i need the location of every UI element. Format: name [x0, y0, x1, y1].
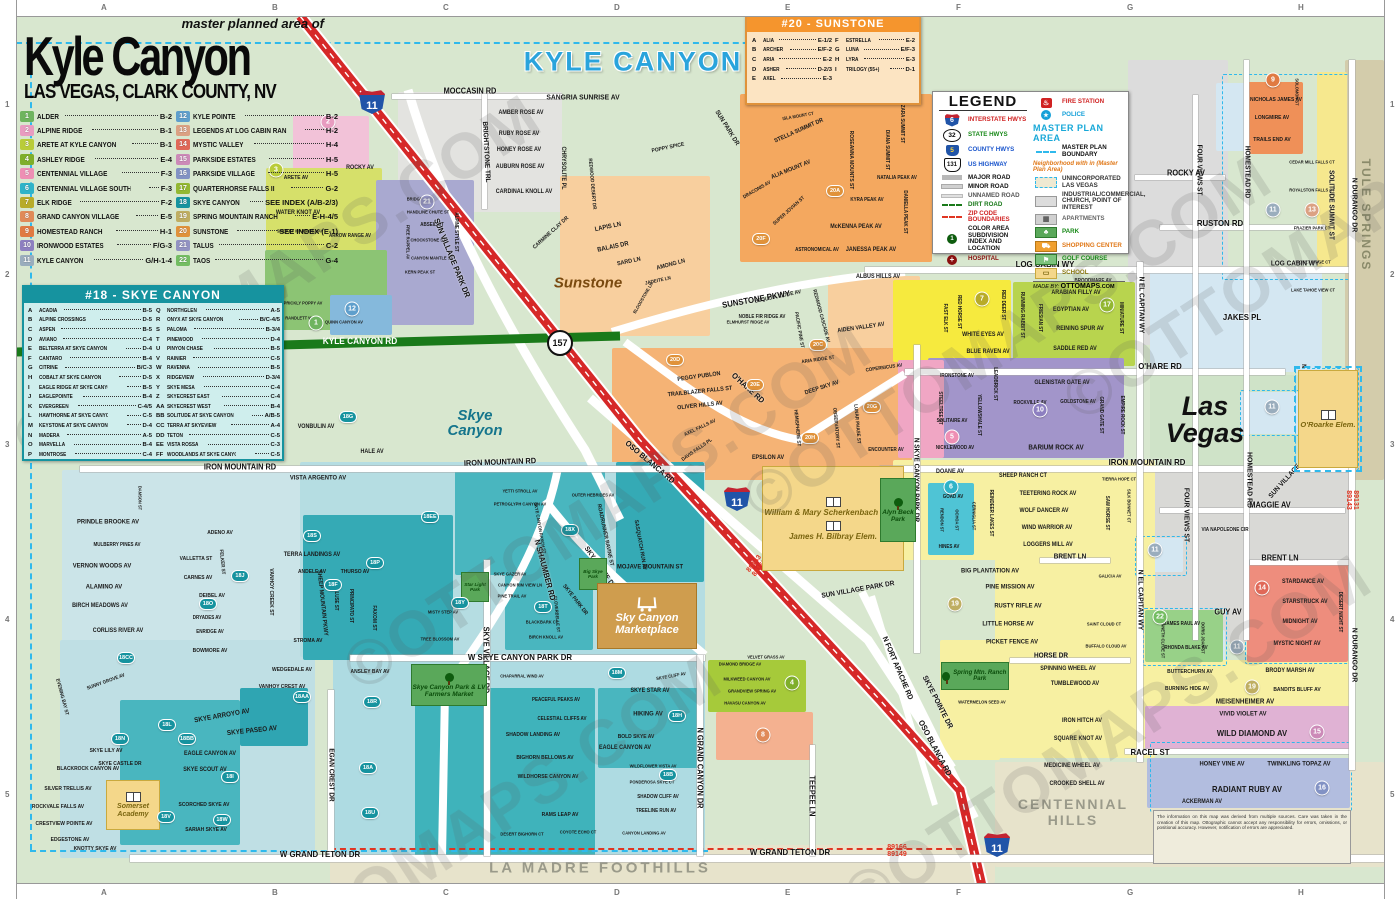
index-row[interactable]: 3ARETE AT KYLE CANYONB-1	[20, 138, 172, 152]
subdivision-marker-18H[interactable]: 18H	[669, 711, 685, 721]
street-label: DAMSON ST	[138, 486, 143, 510]
sub-index-name: RAVENNA	[167, 365, 190, 371]
sub-index-name: PINYON CHASE	[167, 346, 203, 352]
subdivision-marker-18M[interactable]: 18M	[609, 668, 625, 678]
legend-item: MINOR ROAD	[939, 184, 1027, 191]
street-label: BOWMORE AV	[193, 648, 228, 654]
sub-index-row[interactable]: RONYX AT SKYE CANYONB/C-4/5	[156, 316, 280, 326]
road-label: N DURANGO DR	[1351, 628, 1360, 682]
index-name: HOMESTEAD RANCH	[37, 227, 103, 236]
unnamed-road-icon	[939, 194, 965, 198]
sub-index-letter: H	[28, 375, 39, 381]
sub-index-ref: C-4	[271, 385, 281, 391]
sub-index-ref: E-1/2	[818, 38, 832, 44]
index-row[interactable]: 21TALUSC-2	[176, 239, 338, 253]
sub-index-letter: T	[156, 337, 167, 343]
street-label: IRONSTONE AV	[940, 373, 974, 379]
index-row[interactable]: 18SKYE CANYONSEE INDEX (A/B-2/3)	[176, 195, 338, 209]
sub-index-row[interactable]: NMADERAA-5	[28, 431, 152, 441]
sub-index-row[interactable]: GCITRINEB/C-3	[28, 364, 152, 374]
road-label: JAKES PL	[1223, 312, 1261, 322]
index-ref: SEE INDEX (E-1)	[279, 227, 338, 236]
sub-index-name: BELTERRA AT SKYE CANYON	[39, 346, 107, 352]
subdivision-marker-18N[interactable]: 18N	[112, 734, 128, 744]
dirt-road-icon	[939, 204, 965, 206]
street-label: DIAMOND BRIDGE AV	[719, 662, 762, 667]
subdivision-marker-18P[interactable]: 18P	[367, 558, 383, 568]
subdivision-marker-20A[interactable]: 20A	[827, 186, 843, 196]
street-label: TWINKLING TOPAZ AV	[1267, 761, 1330, 768]
index-ref: G-2	[325, 184, 338, 193]
subdivision-marker-20H[interactable]: 20H	[802, 433, 818, 443]
sub-index-row[interactable]: AACADIAB-5	[28, 306, 152, 316]
park-name-alyn-beck: Alyn Beck Park	[881, 509, 915, 523]
index-number-chip: 5	[20, 168, 34, 179]
sub-index-ref: C-4/5	[138, 404, 152, 410]
sub-index-name: NORTHGLEN	[167, 308, 197, 314]
street-label: BURNING HIDE AV	[1165, 686, 1209, 692]
road-label: W GRAND TETON DR	[280, 849, 360, 859]
index-row[interactable]: 16PARKSIDE VILLAGEH-5	[176, 167, 338, 181]
legend-item: 1COLOR AREA SUBDIVISION INDEX AND LOCATI…	[939, 226, 1027, 252]
subdivision-marker-15[interactable]: 15	[1311, 726, 1324, 739]
index-ref: H-1	[160, 227, 172, 236]
subdivision-marker-16[interactable]: 16	[1316, 782, 1329, 795]
subdivision-marker-5[interactable]: 5	[946, 431, 959, 444]
grid-row-label: 3	[5, 440, 9, 449]
zip-code-label: 8916689149	[887, 844, 906, 858]
subdivision-marker-18A[interactable]: 18A	[360, 763, 376, 773]
sub-index-name: MONTROSE	[39, 452, 66, 458]
index-row[interactable]: 1ALDERB-2	[20, 109, 172, 123]
subdivision-marker-18BB[interactable]: 18BB	[179, 734, 195, 744]
road-label: RUSTON RD	[1197, 218, 1243, 228]
street-label: KENNETH CLYDE ST	[1161, 618, 1166, 658]
sub-index-row[interactable]: FCANTAROB-4	[28, 354, 152, 364]
street-label: CRESTVIEW POINTE AV	[36, 821, 93, 827]
road-band[interactable]	[1010, 658, 1130, 663]
sub-index-row[interactable]: SPALOMAB-3/4	[156, 325, 280, 335]
index-name: ALDER	[37, 112, 59, 121]
park-star-light[interactable]: Star Light Park	[461, 572, 489, 602]
index-name: ASHLEY RIDGE	[37, 155, 85, 164]
road-band[interactable]	[1137, 262, 1143, 762]
sunstone-index-title: #20 - SUNSTONE	[747, 17, 919, 32]
street-label: STARSTRUCK AV	[1282, 599, 1327, 605]
sub-index-name: ONYX AT SKYE CANYON	[167, 317, 223, 323]
park-spring-mtn-ranch[interactable]: Spring Mtn. Ranch Park	[941, 662, 1009, 690]
road-label: KYLE CANYON RD	[323, 336, 398, 346]
index-ref: G/H-1-4	[145, 256, 172, 265]
legend-item: MASTER PLAN BOUNDARY	[1033, 145, 1125, 158]
sub-index-name: TETON	[167, 433, 183, 439]
subdivision-marker-13[interactable]: 13	[1306, 204, 1319, 217]
subdivision-marker-20D[interactable]: 20D	[667, 355, 683, 365]
street-label: BLACKROCK CANYON AV	[57, 766, 119, 772]
sw-park-icon: ♣	[1033, 227, 1059, 238]
subdivision-marker-18V[interactable]: 18V	[158, 812, 174, 822]
index-number-chip: 17	[176, 183, 190, 194]
subdivision-marker-18F[interactable]: 18F	[325, 580, 341, 590]
sub-index-row[interactable]: HLYRAE-3	[835, 55, 915, 65]
school-somerset[interactable]: Somerset Academy	[106, 780, 160, 830]
index-row[interactable]: 9HOMESTEAD RANCHH-1	[20, 224, 172, 238]
credit-name[interactable]: OTTOMAPS	[1061, 283, 1101, 290]
street-label: ROCKVALE FALLS AV	[32, 804, 84, 810]
sub-index-row[interactable]: CCTERRA AT SKYEVIEWA-4	[156, 421, 280, 431]
sub-index-name: ASHER	[763, 67, 780, 73]
street-label: SKYE STAR AV	[631, 688, 670, 694]
sub-index-name: MADERA	[39, 433, 60, 439]
zip-code: 89143	[1345, 490, 1352, 509]
street-label: HANDLINE CHUTE ST	[407, 210, 449, 215]
index-row[interactable]: 19SPRING MOUNTAIN RANCHE-H-4/5	[176, 210, 338, 224]
la-madre-foothills-label: LA MADRE FOOTHILLS	[489, 860, 711, 877]
sub-index-letter: V	[156, 356, 167, 362]
subdivision-marker-20G[interactable]: 20G	[864, 402, 880, 412]
sub-index-row[interactable]: AALIAE-1/2	[752, 36, 832, 46]
subdivision-marker-22[interactable]: 22	[1154, 611, 1167, 624]
street-label: ENRIDGE AV	[196, 629, 224, 635]
sub-index-letter: M	[28, 423, 39, 429]
sub-index-name: WOODLANDS AT SKYE CANYON	[167, 452, 236, 458]
index-ref: H-4	[326, 140, 338, 149]
sub-index-row[interactable]: BARCHERE/F-2	[752, 46, 832, 56]
sub-index-name: ARCHER	[763, 47, 783, 53]
street-label: GRAND GATE ST	[1098, 397, 1104, 434]
sub-index-letter: O	[28, 442, 39, 448]
sub-index-letter: G	[835, 47, 846, 53]
sub-index-row[interactable]: FESTRELLAE-2	[835, 36, 915, 46]
street-label: GOAD AV	[943, 494, 964, 500]
index-ref: B-2	[160, 112, 172, 121]
subdivision-marker-11[interactable]: 11	[1231, 641, 1244, 654]
sub-index-row[interactable]: HCOBALT AT SKYE CANYOND-5	[28, 373, 152, 383]
subdivision-marker-12[interactable]: 12	[346, 303, 359, 316]
sub-index-row[interactable]: JEAGLEPOINTEB-4	[28, 392, 152, 402]
sub-index-row[interactable]: ZSKYECREST EASTC-4	[156, 392, 280, 402]
road-label: W GRAND TETON DR	[750, 847, 830, 857]
index-ref: F/G-3	[153, 241, 172, 250]
index-row[interactable]: 5CENTENNIAL VILLAGEF-3	[20, 167, 172, 181]
subdivision-marker-20E[interactable]: 20E	[747, 380, 763, 390]
sub-index-name: RAINIER	[167, 356, 186, 362]
sub-index-ref: C-5	[143, 413, 153, 419]
subdivision-marker-19[interactable]: 19	[949, 598, 962, 611]
subdivision-marker-18AA[interactable]: 18AA	[294, 692, 310, 702]
tree-icon	[894, 498, 903, 507]
grid-col-label: A	[101, 888, 107, 897]
index-row[interactable]: 22TAOSG-4	[176, 253, 338, 267]
sub-index-row[interactable]: IEAGLE RIDGE AT SKYE CANYONB-5	[28, 383, 152, 393]
subdivision-marker-20C[interactable]: 20C	[810, 340, 826, 350]
sub-index-name: RIDGEVIEW	[167, 375, 194, 381]
sub-index-name: PALOMA	[167, 327, 187, 333]
index-row[interactable]: 7ELK RIDGEF-2	[20, 195, 172, 209]
road-label: HOMESTEAD RD	[1244, 146, 1251, 198]
sub-index-row[interactable]: DDTETONC-5	[156, 431, 280, 441]
index-row[interactable]: 12KYLE POINTEB-2	[176, 109, 338, 123]
street-label: GLENISTAR GATE AV	[1034, 380, 1089, 386]
index-name: GRAND CANYON VILLAGE	[37, 212, 119, 221]
sub-index-row[interactable]: ITRILOGY (55+)D-1	[835, 65, 915, 75]
street-label: SARIAH SKYE AV	[185, 827, 227, 833]
index-ref: H-5	[326, 155, 338, 164]
subdivision-marker-18I[interactable]: 18I	[222, 772, 238, 782]
street-label: ELMHURST RIDGE AV	[727, 320, 770, 325]
street-label: SKYE SCOUT AV	[183, 767, 227, 773]
street-label: DESERT BIGHORN CT	[500, 832, 543, 837]
park-skye-canyon[interactable]: Skye Canyon Park & LV Farmers Market	[411, 664, 487, 706]
road-label: BRENT LN	[1261, 554, 1298, 563]
street-label: LONGMIRE AV	[1255, 115, 1289, 121]
legend-item: MASTER PLAN AREA	[1033, 123, 1125, 143]
road-label: RACEL ST	[1131, 747, 1170, 757]
subdivision-marker-18W[interactable]: 18W	[214, 815, 230, 825]
sw-unincorporated-icon	[1033, 177, 1059, 188]
subdivision-marker-1[interactable]: 1	[310, 317, 323, 330]
sub-index-row[interactable]: CARIAE-2	[752, 55, 832, 65]
street-label: MYSTIC NIGHT AV	[1273, 641, 1320, 647]
legend-item: ▭SCHOOL	[1033, 268, 1125, 279]
index-row[interactable]: 2ALPINE RIDGEB-1	[20, 123, 172, 137]
sub-index-name: AXEL	[763, 76, 776, 82]
index-row[interactable]: 4ASHLEY RIDGEE-4	[20, 152, 172, 166]
sub-index-name: SOLITUDE AT SKYE CANYON	[167, 413, 234, 419]
sub-index-letter: D	[752, 67, 763, 73]
sub-index-name: EAGLE RIDGE AT SKYE CANYON	[39, 385, 108, 391]
street-label: THURSO AV	[341, 569, 370, 575]
street-label: EAGLE CANYON AV	[599, 745, 651, 751]
street-label: RUNNING RABBIT ST	[1019, 292, 1025, 338]
sub-index-row[interactable]: VRAINIERC-5	[156, 354, 280, 364]
sub-index-row[interactable]: EEVISTA ROSSAC-3	[156, 440, 280, 450]
sub-index-letter: C	[752, 57, 763, 63]
sub-index-letter: C	[28, 327, 39, 333]
index-name: LEGENDS AT LOG CABIN RANCH	[193, 126, 287, 135]
sub-index-name: SKYECREST WEST	[167, 404, 211, 410]
index-row[interactable]: 8GRAND CANYON VILLAGEE-5	[20, 210, 172, 224]
sub-index-row[interactable]: FFWOODLANDS AT SKYE CANYONC-5	[156, 450, 280, 460]
road-band[interactable]	[484, 560, 490, 856]
index-row[interactable]: 15PARKSIDE ESTATESH-5	[176, 152, 338, 166]
index-row[interactable]: 14MYSTIC VALLEYH-4	[176, 138, 338, 152]
sub-index-row[interactable]: PMONTROSEC-4	[28, 450, 152, 460]
legend-label: COUNTY HWYS	[968, 147, 1014, 154]
sub-index-row[interactable]: AASKYECREST WESTB-4	[156, 402, 280, 412]
school-name-bilbray: James H. Bilbray Elem.	[789, 532, 877, 541]
sub-index-row[interactable]: DASHERD-2/3	[752, 65, 832, 75]
subdivision-marker-14[interactable]: 14	[1256, 582, 1269, 595]
street-label: VERNON WOODS AV	[73, 563, 132, 570]
sub-index-row[interactable]: LHAWTHORNE AT SKYE CANYONC-5	[28, 412, 152, 422]
kyle-canyon-master-plan-label: KYLE CANYON	[524, 47, 743, 78]
subdivision-marker-18Y[interactable]: 18Y	[452, 598, 468, 608]
sw-apartments-icon: ▦	[1033, 214, 1059, 225]
subdivision-marker-19[interactable]: 19	[1246, 681, 1259, 694]
street-label: BANDITS BLUFF AV	[1273, 687, 1320, 693]
grid-col-label: F	[956, 3, 961, 12]
street-label: GOLDSTONE AV	[1060, 399, 1095, 405]
subdivision-marker-18CC[interactable]: 18CC	[118, 653, 134, 663]
street-label: CERNIGLIA ST	[972, 502, 977, 530]
subdivision-marker-18G[interactable]: 18G	[340, 412, 356, 422]
street-label: KYRA PEAK AV	[850, 197, 883, 203]
sub-index-name: ESTRELLA	[846, 38, 871, 44]
grid-row-label: 2	[1390, 270, 1394, 279]
legend-item: ★POLICE	[1033, 110, 1125, 120]
school-oroarke[interactable]: O'Roarke Elem.	[1298, 370, 1358, 468]
tule-springs-label: TULE SPRINGS	[1359, 159, 1373, 272]
credit-prefix: MADE BY:	[1033, 284, 1059, 290]
subdivision-marker-6[interactable]: 6	[945, 481, 958, 494]
street-label: CEDAR MILL FALLS CT	[1289, 160, 1334, 165]
index-number-chip: 12	[176, 111, 190, 122]
street-label: EGYPTIAN AV	[1053, 307, 1089, 313]
index-ref: F-3	[161, 169, 172, 178]
legend-item: 5COUNTY HWYS	[939, 145, 1027, 156]
street-label: BUFFALO CLOUD AV	[1086, 644, 1127, 649]
map-canvas[interactable]: KYLE CANYON Las Vegas Sunstone Skye Cany…	[0, 0, 1400, 899]
credit-suffix: .COM	[1100, 284, 1114, 290]
sub-index-ref: C-3	[271, 442, 281, 448]
index-row[interactable]: 11KYLE CANYONG/H-1-4	[20, 253, 172, 267]
sub-index-row[interactable]: EBELTERRA AT SKYE CANYOND-4	[28, 344, 152, 354]
index-ref: F-2	[161, 198, 172, 207]
shopping-sky-canyon-marketplace[interactable]: Sky Canyon Marketplace	[597, 583, 697, 649]
road-label: SOLITUDE SUMMIT ST	[1328, 170, 1335, 240]
sub-index-name: VISTA ROSSA	[167, 442, 198, 448]
street-label: HAVASU CANYON AV	[724, 701, 765, 706]
subdivision-marker-9[interactable]: 9	[1267, 74, 1280, 87]
street-label: SADDLE RED AV	[1053, 346, 1097, 352]
subdivision-marker-4[interactable]: 4	[786, 677, 799, 690]
subdivision-marker-21[interactable]: 21	[421, 196, 434, 209]
sub-index-row[interactable]: WRAVENNAB-5	[156, 364, 280, 374]
road-band[interactable]	[80, 466, 705, 472]
subdivision-marker-10[interactable]: 10	[1034, 404, 1047, 417]
sub-index-ref: C-5	[271, 433, 281, 439]
street-label: SHEEP RANCH CT	[999, 473, 1047, 479]
street-label: DORIS JOAN ST	[1201, 622, 1206, 654]
index-row[interactable]: 10IRONWOOD ESTATESF/G-3	[20, 239, 172, 253]
sub-index-letter: EE	[156, 442, 167, 448]
sub-index-row[interactable]: CASPENB-5	[28, 325, 152, 335]
index-row[interactable]: 17QUARTERHORSE FALLS IIG-2	[176, 181, 338, 195]
title-sub: LAS VEGAS, CLARK COUNTY, NV	[24, 81, 305, 104]
legend-item: UNINCORPORATED LAS VEGAS	[1033, 176, 1125, 189]
index-number-chip: 8	[20, 211, 34, 222]
street-label: QUINN CANYON AV	[325, 320, 363, 325]
street-label: DEIBEL AV	[199, 593, 225, 599]
street-label: CHAPARRAL WIND AV	[500, 674, 544, 679]
sub-index-letter: D	[28, 337, 39, 343]
sub-index-ref: B/C-3	[137, 365, 152, 371]
subdivision-marker-18J[interactable]: 18J	[232, 571, 248, 581]
subdivision-marker-8[interactable]: 8	[757, 729, 770, 742]
legend-item: ⚑GOLF COURSE	[1033, 254, 1125, 265]
subdivision-marker-11[interactable]: 11	[1266, 401, 1279, 414]
street-label: SAINT CLOUD CT	[1087, 622, 1121, 627]
subdivision-marker-18O[interactable]: 18O	[200, 599, 216, 609]
sw-school-icon: ▭	[1033, 268, 1059, 279]
subdivision-marker-18EE[interactable]: 18EE	[422, 512, 438, 522]
subdivision-marker-7[interactable]: 7	[976, 293, 989, 306]
road-label: FOUR VIEWS ST	[1183, 488, 1192, 542]
road-label: N GRAND CANYON DR	[696, 728, 705, 809]
street-label: MEDICINE WHEEL AV	[1044, 763, 1100, 769]
subdivision-marker-11[interactable]: 11	[1267, 204, 1280, 217]
street-label: PRINCIPATO ST	[348, 589, 354, 623]
sub-index-ref: B-5	[143, 385, 153, 391]
subdivision-marker-18L[interactable]: 18L	[159, 720, 175, 730]
subdivision-marker-18S[interactable]: 18S	[304, 531, 320, 541]
grid-row-label: 2	[5, 270, 9, 279]
sub-index-ref: E-3	[823, 76, 832, 82]
street-label: IRON HITCH AV	[1062, 718, 1102, 724]
street-label: WEDGEDALE AV	[272, 667, 312, 673]
sub-index-letter: E	[752, 76, 763, 82]
subdivision-marker-11[interactable]: 11	[1149, 544, 1162, 557]
road-label: ROCKY AV	[1167, 169, 1205, 178]
sub-index-row[interactable]: DAVIANOC-4	[28, 335, 152, 345]
sub-index-row[interactable]: MKEYSTONE AT SKYE CANYOND-4	[28, 421, 152, 431]
sub-index-row[interactable]: EAXELE-3	[752, 74, 832, 84]
sub-index-row[interactable]: TPINEWOODD-4	[156, 335, 280, 345]
legend-item: 32STATE HWYS	[939, 129, 1027, 142]
road-sun-village-park-dr[interactable]	[408, 90, 620, 520]
street-label: BRODY MARSH AV	[1265, 668, 1314, 674]
street-label: LAKE TAHOE VIEW CT	[1291, 288, 1335, 293]
road-label: N EL CAPITAN WY	[1137, 570, 1146, 631]
index-row[interactable]: 6CENTENNIAL VILLAGE SOUTHF-3	[20, 181, 172, 195]
sub-index-row[interactable]: OMARVELLAB-4	[28, 440, 152, 450]
park-alyn-beck[interactable]: Alyn Beck Park	[880, 478, 916, 542]
subdivision-marker-18U[interactable]: 18U	[362, 808, 378, 818]
sub-index-row[interactable]: YSKYE MESAC-4	[156, 383, 280, 393]
subdivision-marker-18X[interactable]: 18X	[562, 525, 578, 535]
index-ref: E-H-4/5	[312, 212, 338, 221]
subdivision-marker-18T[interactable]: 18T	[535, 602, 551, 612]
subdivision-marker-18B[interactable]: 18B	[660, 770, 676, 780]
sub-index-row[interactable]: QNORTHGLENA-5	[156, 306, 280, 316]
sub-index-row[interactable]: KEVERGREENC-4/5	[28, 402, 152, 412]
sub-index-row[interactable]: GLUNAE/F-3	[835, 46, 915, 56]
subdivision-marker-17[interactable]: 17	[1101, 299, 1114, 312]
index-row[interactable]: 13LEGENDS AT LOG CABIN RANCHH-2	[176, 123, 338, 137]
index-row[interactable]: 20SUNSTONESEE INDEX (E-1)	[176, 224, 338, 238]
sub-index-letter: Q	[156, 308, 167, 314]
street-label: KERN PEAK ST	[405, 270, 435, 275]
street-label: WATERMELON SEED AV	[958, 700, 1005, 705]
index-number-chip: 3	[20, 139, 34, 150]
sub-index-ref: C-5	[271, 356, 281, 362]
street-label: YELLOWSHALE ST	[976, 394, 982, 436]
legend-label: APARTMENTS	[1062, 216, 1105, 223]
sub-index-row[interactable]: BBSOLITUDE AT SKYE CANYONA/B-5	[156, 412, 280, 422]
school-name-somerset: Somerset Academy	[107, 803, 159, 818]
sub-index-row[interactable]: BALPINE CROSSINGSD-5	[28, 316, 152, 326]
street-label: VELVET GRASS AV	[747, 655, 784, 660]
subdivision-marker-18R[interactable]: 18R	[364, 697, 380, 707]
sub-index-ref: A/B-5	[265, 413, 280, 419]
subdivision-marker-20F[interactable]: 20F	[753, 234, 769, 244]
sub-index-ref: E-2	[823, 57, 832, 63]
sub-index-name: MARVELLA	[39, 442, 65, 448]
sub-index-row[interactable]: UPINYON CHASEB-5	[156, 344, 280, 354]
sub-index-row[interactable]: XRIDGEVIEWD-3/4	[156, 373, 280, 383]
legend-label: COLOR AREA SUBDIVISION INDEX AND LOCATIO…	[968, 226, 1027, 252]
